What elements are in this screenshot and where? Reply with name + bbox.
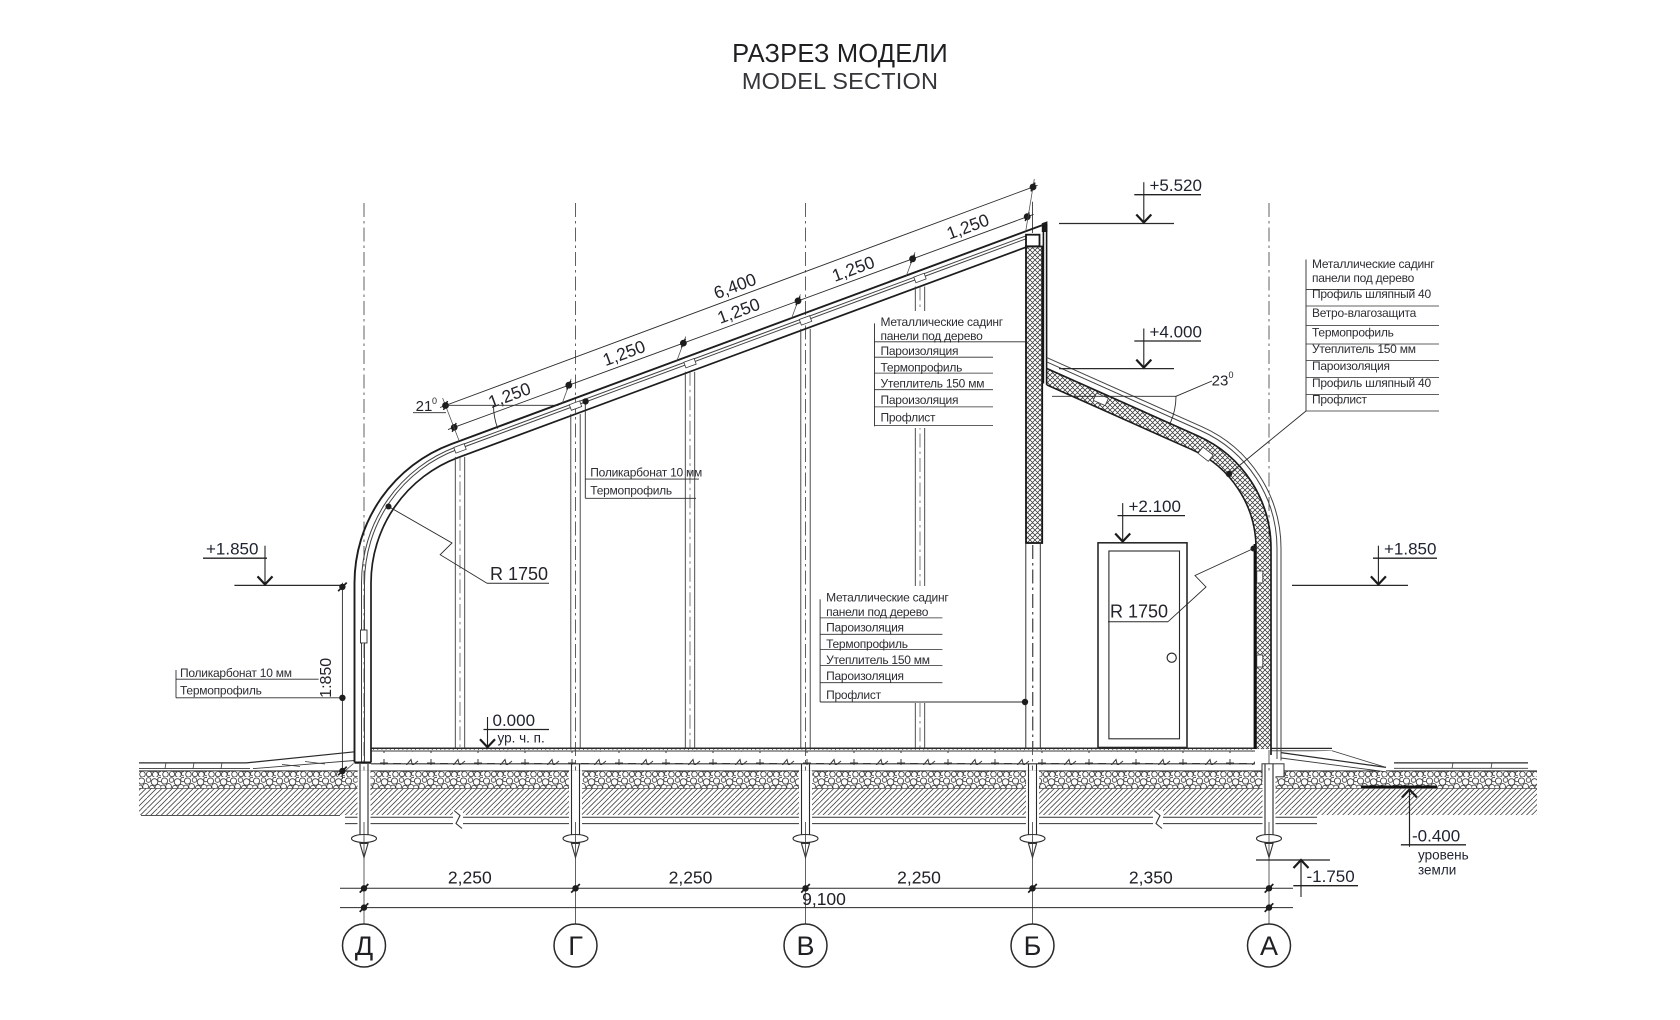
svg-text:земли: земли [1418,863,1456,878]
svg-text:Пароизоляция: Пароизоляция [826,621,904,635]
svg-text:Б: Б [1024,931,1042,961]
svg-text:1:850: 1:850 [318,658,335,698]
svg-text:Поликарбонат 10 мм: Поликарбонат 10 мм [180,666,292,680]
svg-text:Ветро-влагозащита: Ветро-влагозащита [1312,306,1417,320]
svg-text:В: В [796,931,814,961]
svg-text:ур. ч. п.: ур. ч. п. [498,731,545,746]
svg-text:Поликарбонат 10 мм: Поликарбонат 10 мм [590,466,702,480]
svg-text:0.000: 0.000 [493,711,536,730]
svg-text:21: 21 [416,398,433,415]
svg-text:панели под дерево: панели под дерево [826,605,929,619]
svg-text:Утеплитель 150 мм: Утеплитель 150 мм [826,653,930,667]
svg-text:2,250: 2,250 [448,868,492,888]
svg-text:MODEL SECTION: MODEL SECTION [742,68,938,94]
svg-text:Термопрофиль: Термопрофиль [590,484,672,498]
svg-text:Термопрофиль: Термопрофиль [1312,326,1394,340]
svg-text:+5.520: +5.520 [1150,176,1202,195]
svg-text:2,350: 2,350 [1129,868,1173,888]
svg-text:Термопрофиль: Термопрофиль [881,361,963,375]
svg-text:-0.400: -0.400 [1412,826,1460,845]
svg-text:Пароизоляция: Пароизоляция [826,669,904,683]
svg-text:А: А [1260,931,1278,961]
svg-text:23: 23 [1212,373,1229,390]
svg-text:Утеплитель 150 мм: Утеплитель 150 мм [881,377,985,391]
svg-text:2,250: 2,250 [897,868,941,888]
svg-text:0: 0 [1228,370,1233,380]
svg-text:Металлические садинг: Металлические садинг [881,315,1004,329]
svg-text:Профлист: Профлист [826,688,882,702]
svg-text:Термопрофиль: Термопрофиль [826,637,908,651]
svg-text:+2.100: +2.100 [1129,497,1181,516]
svg-text:R 1750: R 1750 [490,564,548,584]
svg-text:Профлист: Профлист [881,410,937,424]
svg-text:2,250: 2,250 [669,868,713,888]
svg-text:панели под дерево: панели под дерево [881,329,984,343]
svg-text:панели под дерево: панели под дерево [1312,271,1415,285]
svg-text:Д: Д [355,931,373,961]
svg-text:+1.850: +1.850 [1384,540,1436,559]
svg-text:+4.000: +4.000 [1150,323,1202,342]
svg-text:9,100: 9,100 [802,889,846,909]
svg-text:Пароизоляция: Пароизоляция [881,393,959,407]
svg-text:Г: Г [568,931,583,961]
svg-text:РАЗРЕЗ МОДЕЛИ: РАЗРЕЗ МОДЕЛИ [732,40,948,68]
svg-text:Пароизоляция: Пароизоляция [881,344,959,358]
svg-text:уровень: уровень [1418,848,1469,863]
svg-text:0: 0 [432,396,437,406]
svg-text:Термопрофиль: Термопрофиль [180,683,262,697]
svg-text:Металлические садинг: Металлические садинг [826,591,949,605]
svg-text:-1.750: -1.750 [1307,867,1355,886]
svg-text:R 1750: R 1750 [1110,602,1168,622]
svg-text:+1.850: +1.850 [206,540,258,559]
svg-text:Металлические садинг: Металлические садинг [1312,257,1435,271]
